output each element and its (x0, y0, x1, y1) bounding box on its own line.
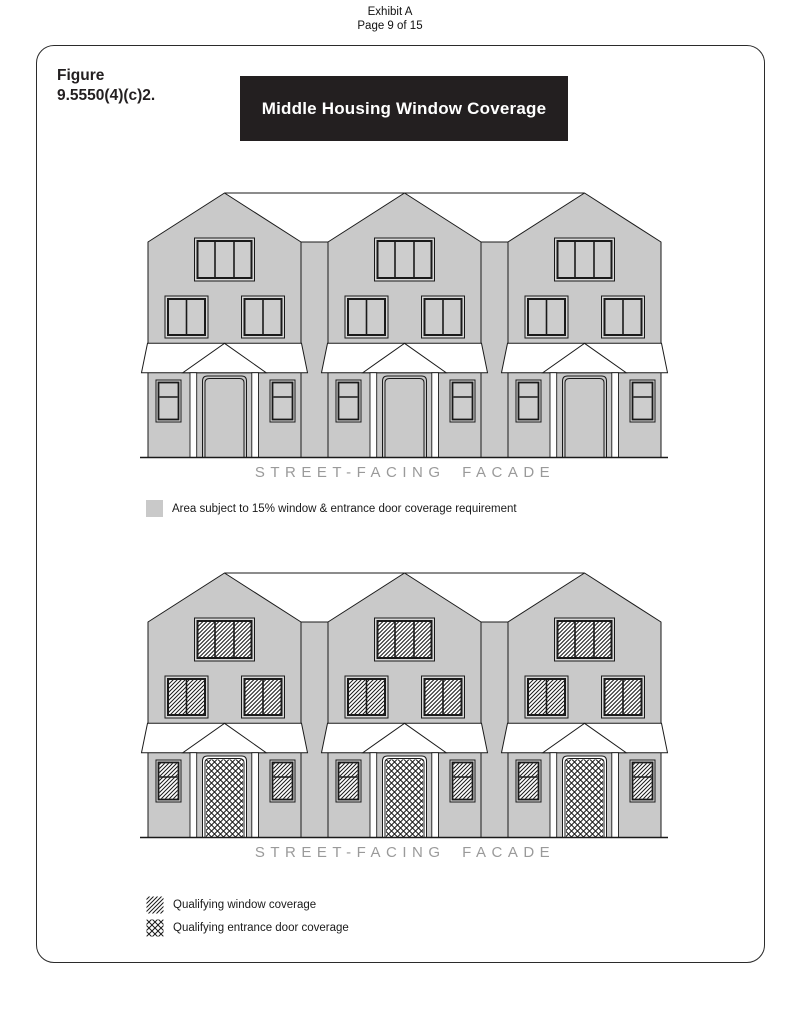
facade-diagram-hatched (140, 568, 670, 848)
exhibit-header: Exhibit A Page 9 of 15 (190, 6, 590, 33)
facade-caption-bottom: STREET-FACING FACADE (140, 844, 670, 861)
party-wall-recess (481, 622, 508, 838)
party-wall-recess (301, 242, 328, 458)
figure-title-text: Middle Housing Window Coverage (262, 99, 546, 119)
gray-fill-swatch (146, 500, 163, 517)
townhouse-unit (502, 193, 668, 458)
figure-label-line2: 9.5550(4)(c)2. (57, 86, 155, 106)
legend-row-door-coverage: Qualifying entrance door coverage (146, 919, 349, 937)
legend-label: Qualifying entrance door coverage (173, 922, 349, 934)
townhouse-unit-hatched (322, 573, 488, 838)
legend-label: Qualifying window coverage (173, 899, 316, 911)
party-wall-recess (481, 242, 508, 458)
diagonal-hatch-swatch (146, 896, 164, 914)
townhouse-unit-hatched (142, 573, 308, 838)
legend-label: Area subject to 15% window & entrance do… (172, 503, 517, 515)
facade-diagram-plain (140, 188, 670, 468)
facade-caption-top: STREET-FACING FACADE (140, 464, 670, 481)
cross-hatch-swatch (146, 919, 164, 937)
figure-label-line1: Figure (57, 66, 155, 86)
legend-row-coverage-area: Area subject to 15% window & entrance do… (146, 500, 517, 517)
exhibit-header-line2: Page 9 of 15 (190, 20, 590, 34)
figure-label: Figure 9.5550(4)(c)2. (57, 66, 155, 106)
party-wall-recess (301, 622, 328, 838)
legend-row-window-coverage: Qualifying window coverage (146, 896, 316, 914)
exhibit-header-line1: Exhibit A (190, 6, 590, 20)
figure-title-banner: Middle Housing Window Coverage (240, 76, 568, 141)
townhouse-unit (142, 193, 308, 458)
townhouse-unit-hatched (502, 573, 668, 838)
townhouse-unit (322, 193, 488, 458)
